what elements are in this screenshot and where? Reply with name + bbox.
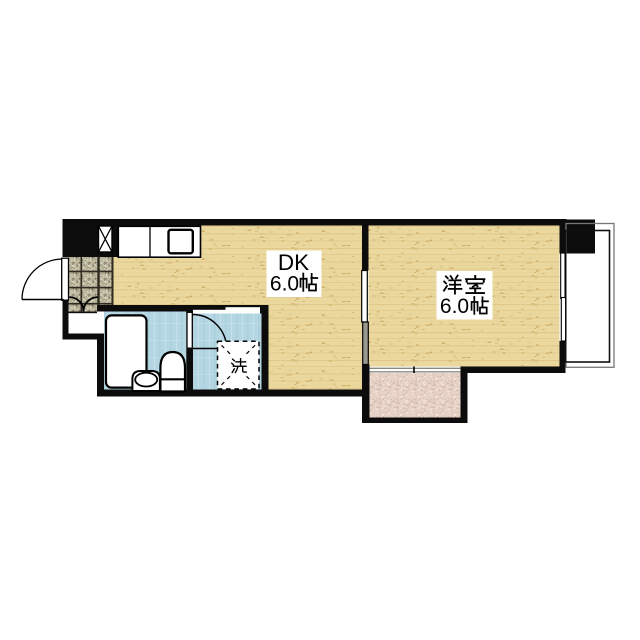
- svg-text:6.0: 6.0: [440, 295, 469, 318]
- svg-text:DK: DK: [278, 250, 309, 275]
- svg-text:6.0: 6.0: [270, 273, 299, 296]
